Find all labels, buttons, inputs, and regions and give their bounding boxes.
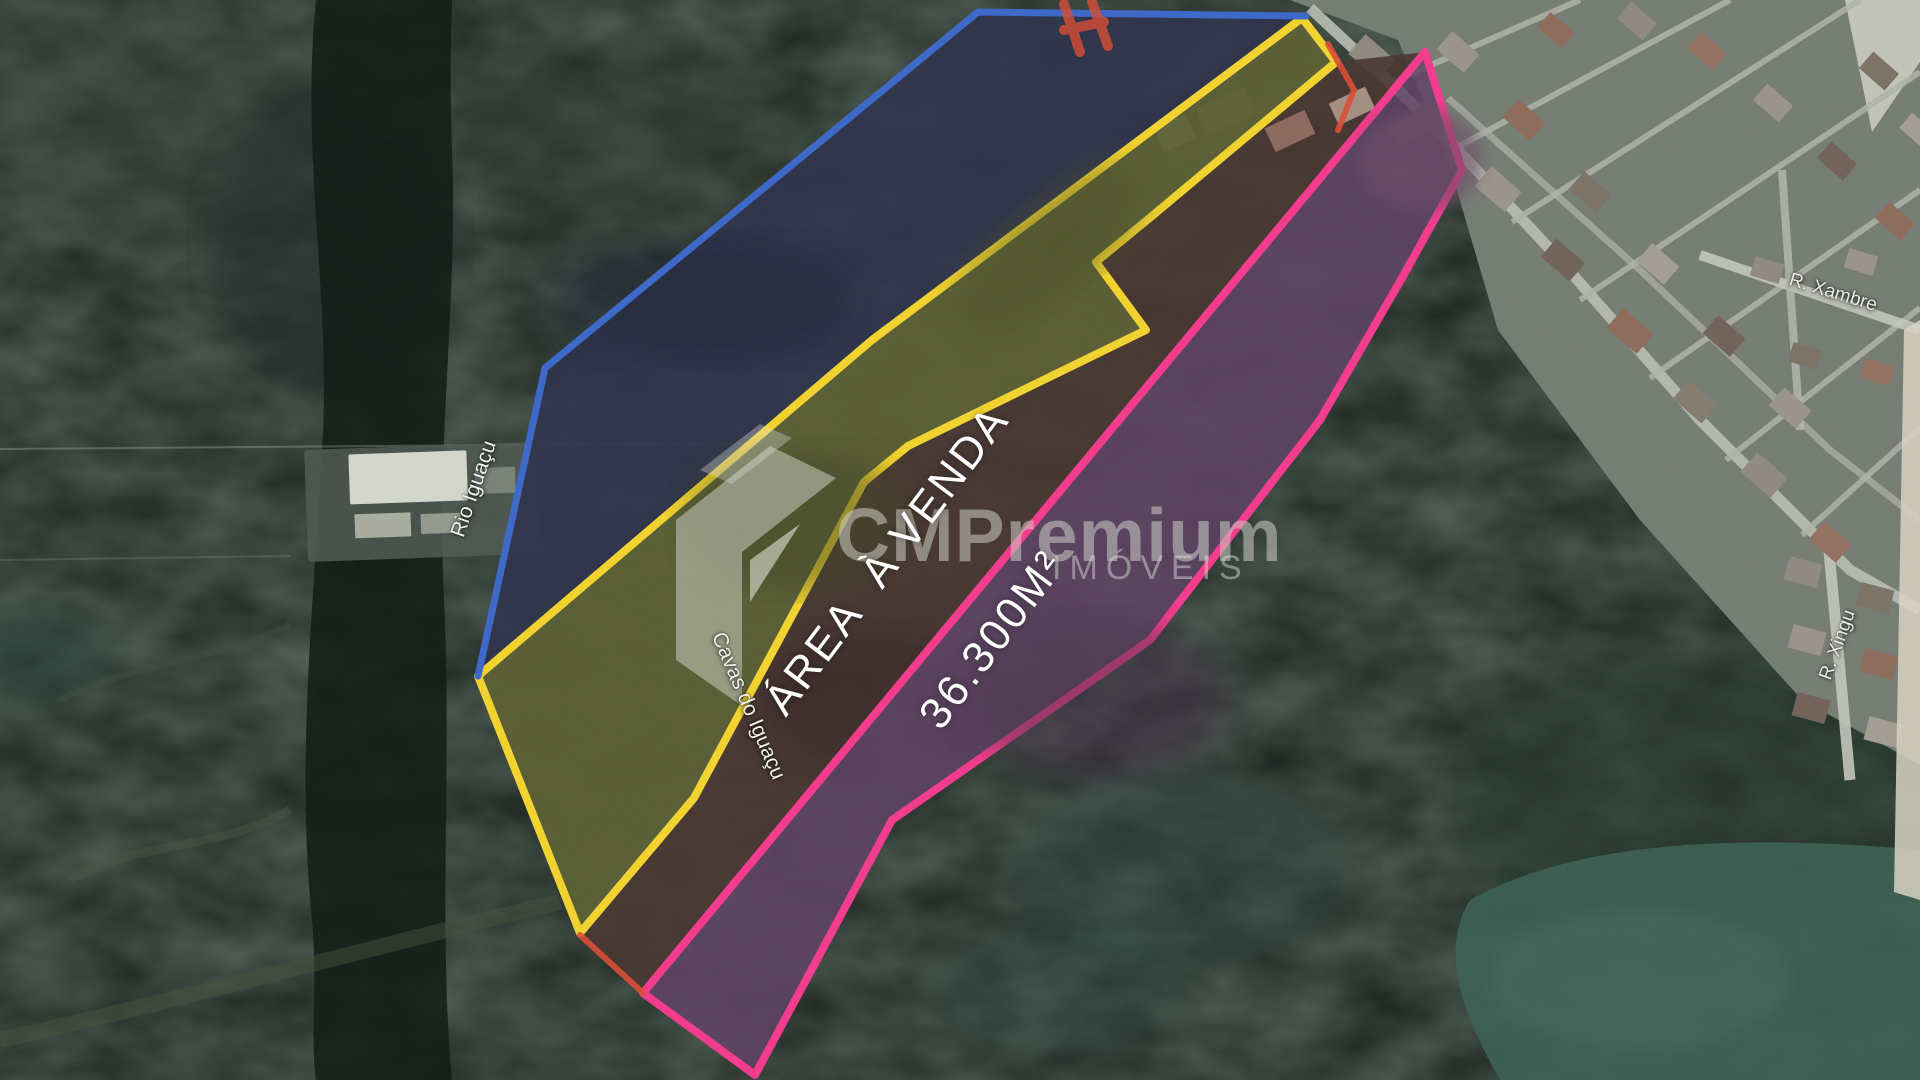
satellite-map-photo: CMPremium IMÓVEIS ÁREA À VENDA 36.300M² … bbox=[0, 0, 1920, 1080]
